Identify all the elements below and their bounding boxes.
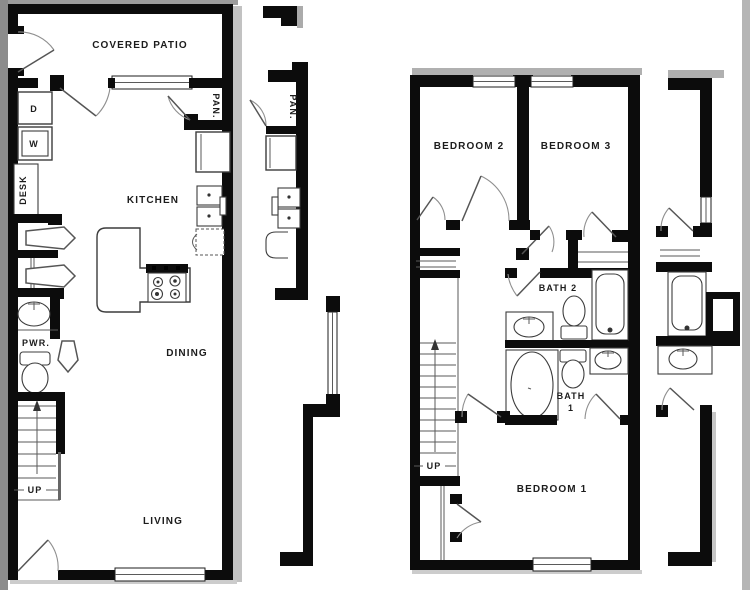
bath1-vanity (590, 348, 628, 374)
party-wall-chase (706, 292, 740, 338)
bedroom2-window (473, 76, 515, 87)
adjacent-window-2f (700, 190, 712, 230)
label-pantry: PAN. (211, 93, 221, 118)
bedroom-divider-wall (517, 87, 529, 228)
dishwasher (193, 229, 225, 255)
stairs2-up-arrow (431, 339, 439, 350)
bath-divider-wall (505, 340, 628, 348)
adjacent-counter-end (266, 232, 288, 258)
floorplan-image: COVERED PATIO PAN. D W DESK (0, 0, 750, 590)
second-floor-unit: BEDROOM 2 BEDROOM 3 (410, 75, 640, 571)
hall-closets (8, 214, 75, 299)
label-bath1-line1: BATH (557, 391, 586, 401)
label-adjacent-pantry: PAN. (288, 94, 298, 119)
bath1-toilet (560, 350, 586, 388)
label-dining: DINING (166, 348, 208, 359)
label-covered-patio: COVERED PATIO (92, 40, 188, 51)
label-bath1-line2: 1 (568, 403, 574, 413)
label-desk: DESK (18, 175, 28, 204)
entry-door (18, 540, 58, 571)
adjacent-unit-first-floor: PAN. (250, 6, 340, 566)
adjacent-kitchen-sink (272, 188, 300, 228)
label-washer: W (29, 139, 39, 149)
floorplan-svg: COVERED PATIO PAN. D W DESK (0, 0, 750, 590)
label-up-first-floor: UP (28, 485, 43, 495)
bedroom1-entry-door (455, 394, 510, 423)
bath2-toilet (561, 296, 587, 339)
bedroom3-door-closet (530, 212, 628, 270)
adjacent-tub (668, 272, 706, 336)
adjacent-refrigerator (266, 136, 296, 170)
powder-door (58, 341, 78, 372)
bath2-tub (592, 270, 628, 340)
living-window (115, 568, 205, 581)
label-bedroom3: BEDROOM 3 (541, 141, 611, 152)
adjacent-unit-second-floor (656, 78, 740, 566)
island-counter (97, 228, 190, 312)
patio-door (18, 32, 54, 72)
label-bath2: BATH 2 (539, 283, 577, 293)
bedroom2-doors (417, 176, 530, 230)
bath2-vanity (506, 312, 553, 342)
label-living: LIVING (143, 516, 183, 527)
refrigerator (196, 132, 230, 172)
label-bedroom1: BEDROOM 1 (517, 484, 587, 495)
bath1 (505, 348, 640, 425)
bedroom1-closet (441, 486, 481, 560)
label-kitchen: KITCHEN (127, 195, 179, 206)
bath2 (505, 268, 628, 342)
adjacent-vanity (658, 346, 712, 374)
adjacent-window (326, 296, 340, 406)
bedroom1-window (533, 558, 591, 571)
bedroom3-window (531, 76, 573, 87)
range-stove (148, 273, 186, 302)
label-up-second-floor: UP (427, 461, 442, 471)
label-dryer: D (30, 104, 38, 114)
powder-toilet (20, 352, 50, 393)
label-bedroom2: BEDROOM 2 (434, 141, 504, 152)
bath1-tub (506, 350, 558, 420)
label-powder: PWR. (22, 338, 50, 348)
first-floor-unit: COVERED PATIO PAN. D W DESK (8, 4, 233, 581)
kitchen-sink (197, 186, 226, 226)
powder-sink (18, 302, 50, 326)
